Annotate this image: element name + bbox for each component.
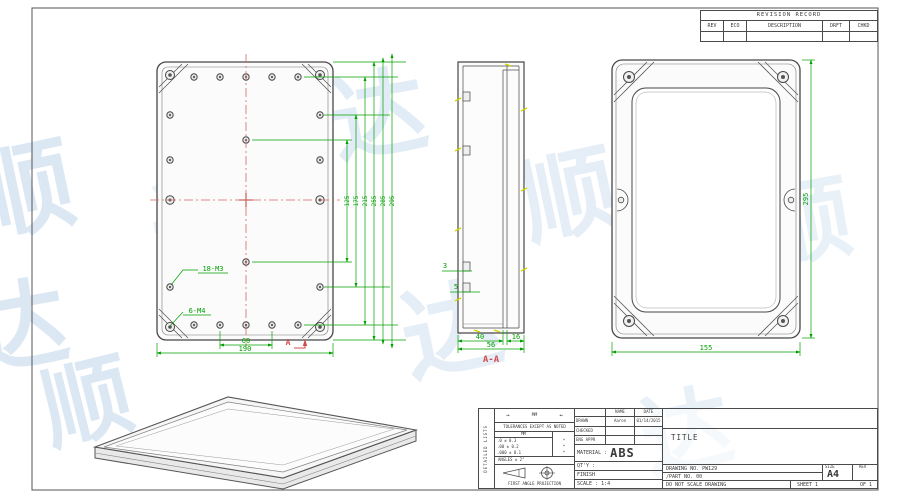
dim-rib-top: 3 bbox=[443, 262, 447, 270]
signoff-empty-header bbox=[575, 409, 605, 417]
checked-name bbox=[605, 427, 634, 436]
drawn-date: 01/14/2015 bbox=[634, 417, 662, 427]
revision-table: REVISION RECORD REV ECO DESCRIPTION DRFT… bbox=[700, 10, 878, 42]
signoff-grid: NAME DATE DRAWN Aaron 01/14/2015 CHECKED… bbox=[575, 409, 663, 488]
units-row: → MM ← bbox=[495, 409, 574, 423]
dim-hole-span: 60 bbox=[242, 337, 250, 345]
drawn-name: Aaron bbox=[605, 417, 634, 427]
size-value: A4 bbox=[827, 469, 839, 481]
revision-col-eco: ECO bbox=[724, 21, 747, 32]
revision-col-chkd: CHKD bbox=[850, 21, 877, 32]
title-area: TITLE DRAWING NO. PW129 /PART NO. 00 SIZ… bbox=[663, 409, 878, 488]
front-view bbox=[157, 62, 333, 340]
checked-date bbox=[634, 427, 662, 436]
eng-appr-label: ENG APPR bbox=[575, 436, 605, 445]
revision-empty-cell bbox=[724, 32, 747, 41]
do-not-scale-cell: DO NOT SCALE DRAWING bbox=[663, 481, 791, 488]
dim-height: 295 bbox=[802, 193, 810, 206]
section-arrow-label: A bbox=[286, 338, 291, 347]
projection-symbol-icon bbox=[495, 466, 574, 480]
units-label: MM bbox=[532, 413, 537, 418]
label-small-holes: 18-M3 bbox=[202, 265, 223, 273]
section-view-title: A-A bbox=[483, 355, 500, 365]
revision-col-description: DESCRIPTION bbox=[747, 21, 823, 32]
tolerance-box: → MM ← TOLERANCES EXCEPT AS NOTED MM .0 … bbox=[495, 409, 575, 488]
sheet-cell: SHEET 1 OF 1 bbox=[791, 481, 878, 488]
finish-row: FINISH bbox=[575, 471, 662, 480]
revision-empty-cell bbox=[701, 32, 724, 41]
tolerance-mark-col: * * * bbox=[552, 432, 574, 456]
lid-face bbox=[632, 88, 780, 312]
checked-label: CHECKED bbox=[575, 427, 605, 436]
stacked-dim-0: 125 bbox=[344, 195, 351, 206]
scale-row: SCALE : 1:4 bbox=[575, 480, 662, 488]
date-header: DATE bbox=[634, 409, 662, 417]
rev-cell: REV bbox=[853, 465, 878, 481]
angles-tolerance: ANGLES ± 2° bbox=[495, 456, 574, 465]
dim-rib-bottom: 5 bbox=[454, 283, 458, 291]
revision-col-drft: DRFT bbox=[823, 21, 850, 32]
size-cell: SIZE A4 bbox=[823, 465, 853, 481]
part-no-cell: /PART NO. 00 bbox=[663, 473, 823, 481]
rev-label: REV bbox=[859, 465, 866, 470]
dim-width: 155 bbox=[700, 344, 713, 352]
drawing-no-cell: DRAWING NO. PW129 bbox=[663, 465, 823, 473]
qty-row: QT'Y : bbox=[575, 462, 662, 471]
arrow-right-icon: → bbox=[506, 412, 510, 419]
drawn-label: DRAWN bbox=[575, 417, 605, 427]
material-label: MATERIAL : bbox=[577, 450, 607, 456]
tolerance-note: TOLERANCES EXCEPT AS NOTED bbox=[495, 423, 574, 432]
eng-appr-date bbox=[634, 436, 662, 445]
stacked-dim-5: 295 bbox=[389, 195, 396, 206]
stacked-dim-3: 255 bbox=[371, 195, 378, 206]
of-label: OF 1 bbox=[860, 482, 872, 488]
dim-overall-width: 190 bbox=[239, 345, 252, 353]
eng-appr-name bbox=[605, 436, 634, 445]
dim-inner-depth: 40 bbox=[476, 333, 484, 341]
dim-lid: 16 bbox=[512, 333, 520, 341]
side-strip-label: DETAILED LISTS bbox=[484, 425, 489, 473]
material-value: ABS bbox=[610, 446, 635, 460]
stacked-dim-1: 175 bbox=[353, 195, 360, 206]
dim-total-depth: 56 bbox=[487, 341, 495, 349]
revision-table-title: REVISION RECORD bbox=[701, 11, 877, 21]
label-large-holes: 6-M4 bbox=[189, 307, 206, 315]
logo-cell bbox=[663, 409, 878, 429]
title-block: DETAILED LISTS → MM ← TOLERANCES EXCEPT … bbox=[478, 408, 878, 489]
drawing-sheet: 顺 达 顺 达 顺 达 顺 达 达 bbox=[0, 0, 900, 500]
title-cell: TITLE bbox=[663, 429, 878, 465]
revision-empty-cell bbox=[823, 32, 850, 41]
name-header: NAME bbox=[605, 409, 634, 417]
revision-col-rev: REV bbox=[701, 21, 724, 32]
stacked-dim-2: 215 bbox=[362, 195, 369, 206]
isometric-view bbox=[95, 397, 416, 489]
title-block-side-strip: DETAILED LISTS bbox=[479, 409, 495, 488]
projection-cell: FIRST ANGLE PROJECTION bbox=[495, 465, 574, 488]
stacked-dim-4: 285 bbox=[380, 195, 387, 206]
sheet-label: SHEET 1 bbox=[797, 482, 818, 488]
arrow-left-icon: ← bbox=[559, 412, 563, 419]
projection-label: FIRST ANGLE PROJECTION bbox=[495, 480, 574, 488]
top-view bbox=[612, 60, 800, 338]
material-row: MATERIAL : ABS bbox=[575, 445, 662, 462]
revision-empty-cell bbox=[747, 32, 823, 41]
